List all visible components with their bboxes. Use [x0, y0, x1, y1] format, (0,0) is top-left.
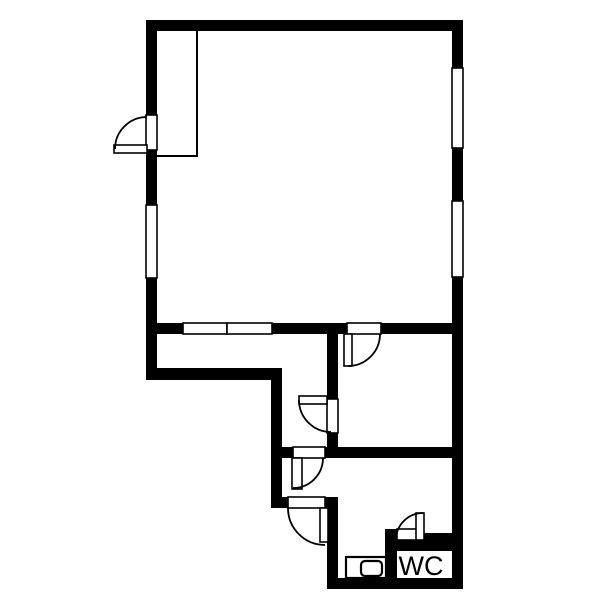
door-leaf: [344, 334, 352, 366]
door-leaf: [114, 145, 147, 153]
door-leaf: [416, 513, 424, 540]
window: [452, 201, 463, 277]
door-swing-arc: [115, 117, 147, 149]
window: [146, 205, 157, 278]
window: [227, 323, 272, 334]
wall: [271, 368, 282, 508]
door-leaf: [292, 458, 302, 489]
door-opening: [327, 399, 338, 433]
floor-plan-svg: WC: [0, 0, 600, 600]
wall: [385, 540, 463, 551]
wall: [327, 323, 338, 458]
door-opening: [347, 323, 381, 334]
window: [452, 68, 463, 148]
wall: [423, 533, 453, 541]
door-leaf: [320, 508, 328, 542]
room-label-wc: WC: [399, 551, 444, 581]
closet-outline: [157, 31, 197, 156]
wall: [146, 368, 282, 380]
door-opening: [288, 497, 325, 508]
door-opening: [293, 447, 325, 458]
door-leaf: [299, 396, 327, 404]
toilet-fixture-bowl: [361, 561, 382, 576]
floor-plan: WC: [0, 0, 600, 600]
wall: [146, 20, 463, 31]
window: [183, 323, 227, 334]
